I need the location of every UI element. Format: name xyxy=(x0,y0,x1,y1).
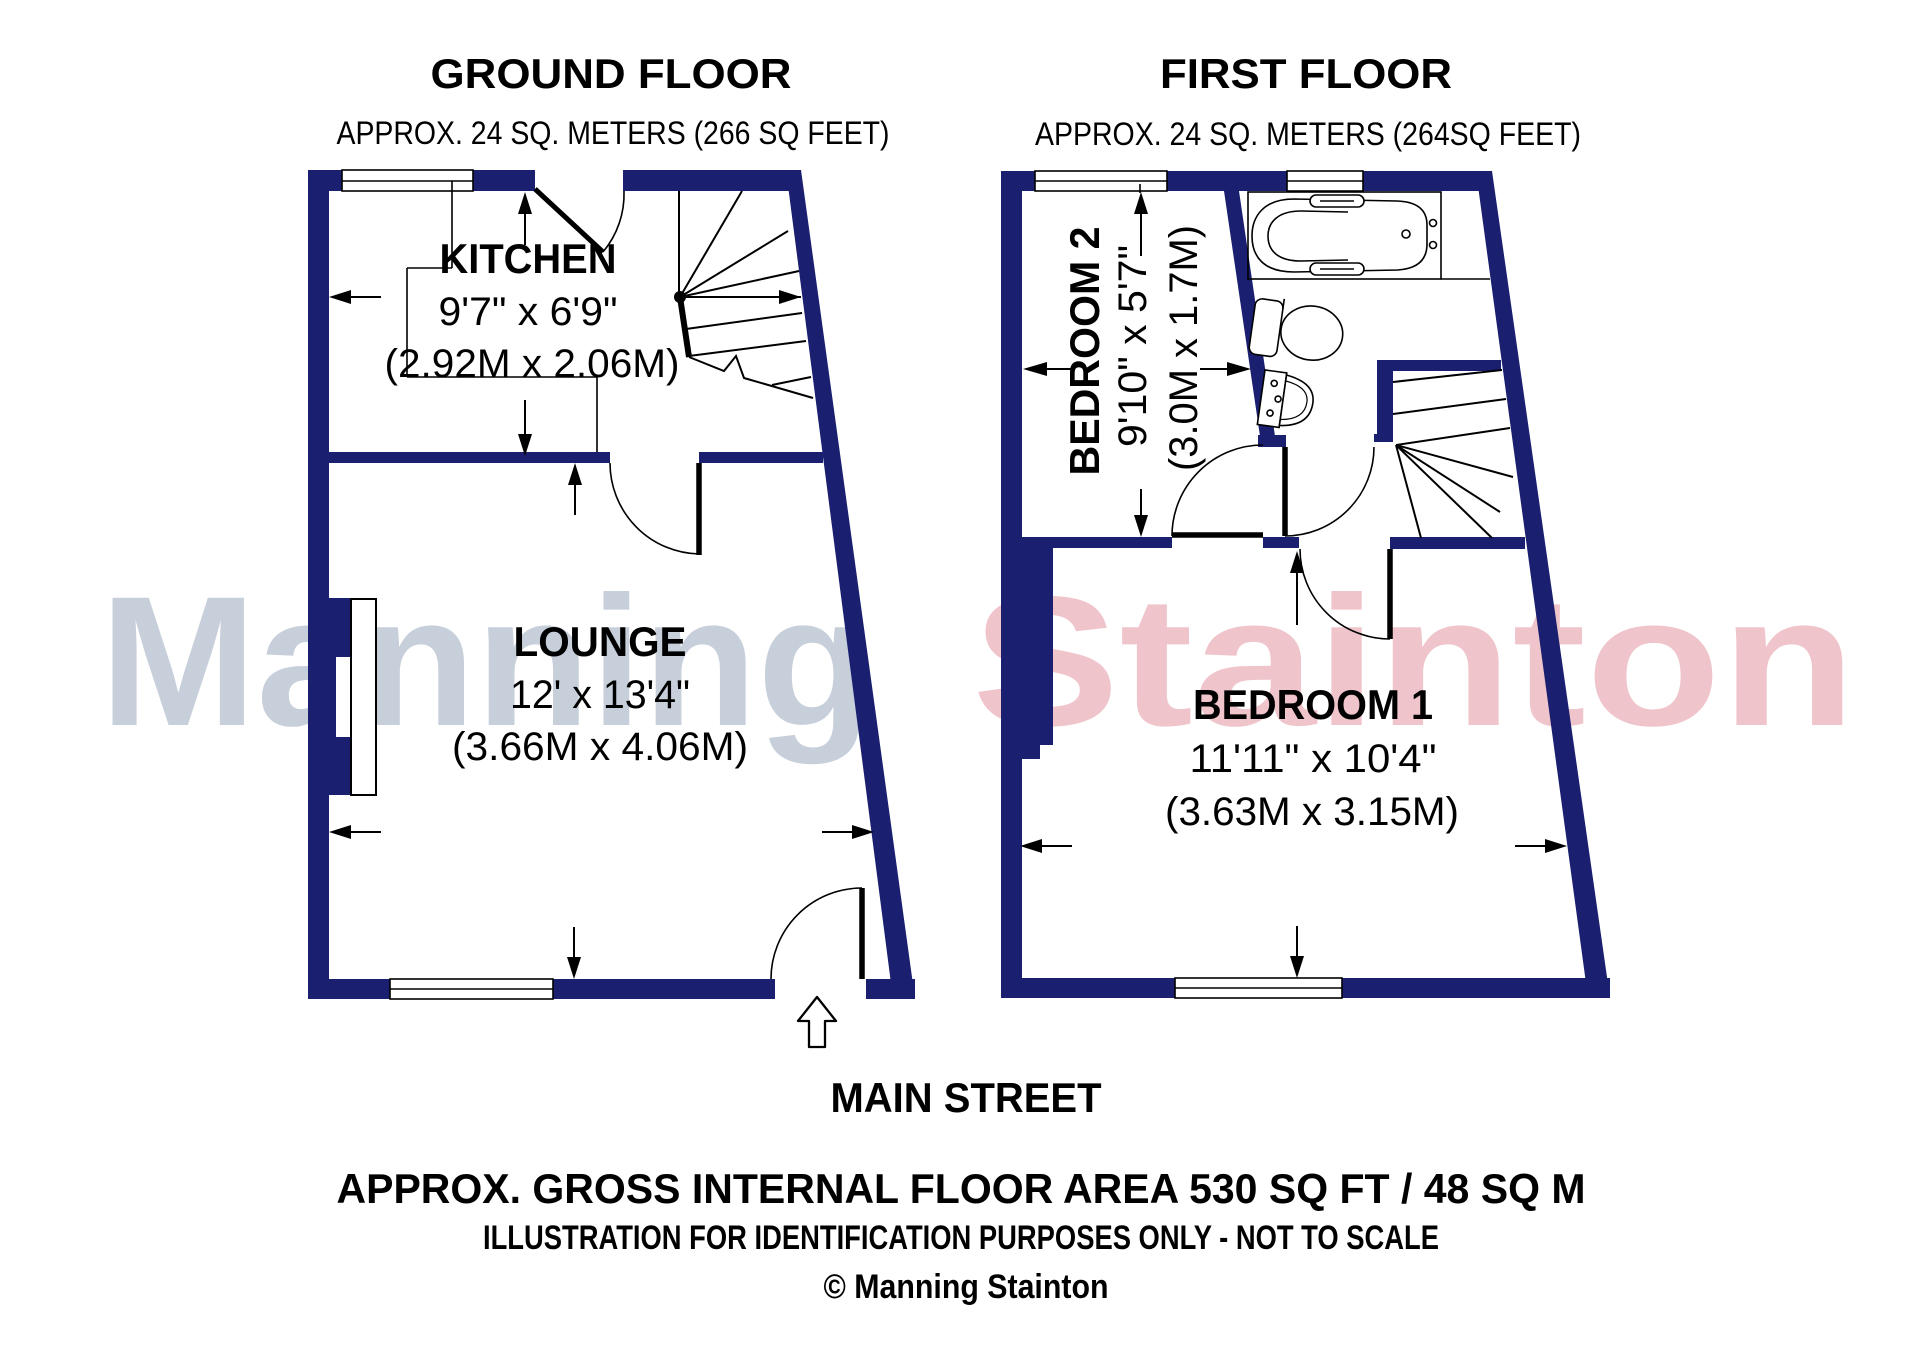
svg-text:ILLUSTRATION FOR IDENTIFICATIO: ILLUSTRATION FOR IDENTIFICATION PURPOSES… xyxy=(483,1219,1439,1257)
svg-text:APPROX. 24 SQ. METERS (266 SQ: APPROX. 24 SQ. METERS (266 SQ FEET) xyxy=(337,115,890,151)
svg-text:© Manning Stainton: © Manning Stainton xyxy=(824,1268,1109,1306)
svg-text:FIRST FLOOR: FIRST FLOOR xyxy=(1160,50,1452,97)
svg-text:(3.66M x 4.06M): (3.66M x 4.06M) xyxy=(452,725,748,769)
svg-text:MAIN STREET: MAIN STREET xyxy=(831,1074,1102,1121)
svg-text:Stainton: Stainton xyxy=(972,559,1856,765)
svg-text:(3.0M x 1.7M): (3.0M x 1.7M) xyxy=(1162,225,1206,471)
svg-text:APPROX. 24 SQ. METERS (264SQ F: APPROX. 24 SQ. METERS (264SQ FEET) xyxy=(1035,116,1581,152)
svg-text:9'10" x 5'7": 9'10" x 5'7" xyxy=(1111,245,1155,447)
svg-text:BEDROOM 2: BEDROOM 2 xyxy=(1061,227,1108,476)
svg-text:(3.63M x 3.15M): (3.63M x 3.15M) xyxy=(1165,790,1459,834)
svg-text:KITCHEN: KITCHEN xyxy=(440,235,617,282)
svg-text:APPROX. GROSS INTERNAL FLOOR A: APPROX. GROSS INTERNAL FLOOR AREA 530 SQ… xyxy=(337,1165,1586,1212)
svg-text:12' x 13'4": 12' x 13'4" xyxy=(510,673,690,717)
svg-text:9'7" x 6'9": 9'7" x 6'9" xyxy=(439,290,618,334)
svg-text:11'11" x 10'4": 11'11" x 10'4" xyxy=(1190,737,1437,781)
svg-text:(2.92M x 2.06M): (2.92M x 2.06M) xyxy=(385,342,680,386)
svg-text:GROUND FLOOR: GROUND FLOOR xyxy=(431,50,792,97)
svg-text:LOUNGE: LOUNGE xyxy=(514,618,687,665)
svg-text:BEDROOM 1: BEDROOM 1 xyxy=(1193,681,1433,728)
